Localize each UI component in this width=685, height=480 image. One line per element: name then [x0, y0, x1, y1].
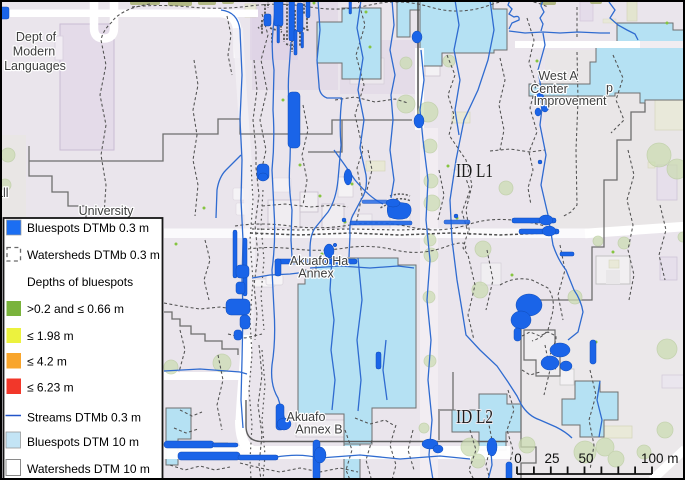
svg-text:25: 25 — [544, 451, 559, 466]
svg-text:Depths of bluespots: Depths of bluespots — [27, 275, 133, 289]
svg-text:West A: West A — [538, 69, 578, 83]
svg-text:0: 0 — [514, 451, 522, 466]
svg-text:University: University — [79, 204, 135, 218]
svg-text:Bluespots DTM 10 m: Bluespots DTM 10 m — [27, 435, 139, 449]
svg-text:≤ 1.98 m: ≤ 1.98 m — [27, 329, 74, 343]
svg-text:Annex B: Annex B — [295, 423, 342, 437]
svg-text:ID L1: ID L1 — [456, 160, 493, 182]
svg-text:Annex: Annex — [298, 267, 334, 281]
svg-text:p: p — [606, 81, 613, 95]
svg-text:100 m: 100 m — [641, 451, 679, 466]
svg-text:Bluespots DTMb 0.3 m: Bluespots DTMb 0.3 m — [27, 221, 149, 235]
svg-text:Watersheds DTMb 0.3 m: Watersheds DTMb 0.3 m — [27, 248, 160, 262]
svg-text:Modern: Modern — [13, 45, 55, 59]
svg-text:≤ 4.2 m: ≤ 4.2 m — [27, 355, 67, 369]
svg-text:ID L2: ID L2 — [456, 406, 493, 428]
svg-text:50: 50 — [578, 451, 593, 466]
svg-text:Languages: Languages — [4, 59, 66, 73]
svg-text:Watersheds DTM 10 m: Watersheds DTM 10 m — [27, 462, 150, 476]
svg-text:≤ 6.23 m: ≤ 6.23 m — [27, 381, 74, 395]
svg-text:Improvement: Improvement — [534, 94, 607, 108]
svg-text:Streams DTMb 0.3 m: Streams DTMb 0.3 m — [27, 411, 141, 425]
svg-text:Dept of: Dept of — [16, 30, 57, 44]
svg-text:>0.2 and ≤ 0.66 m: >0.2 and ≤ 0.66 m — [27, 302, 124, 316]
